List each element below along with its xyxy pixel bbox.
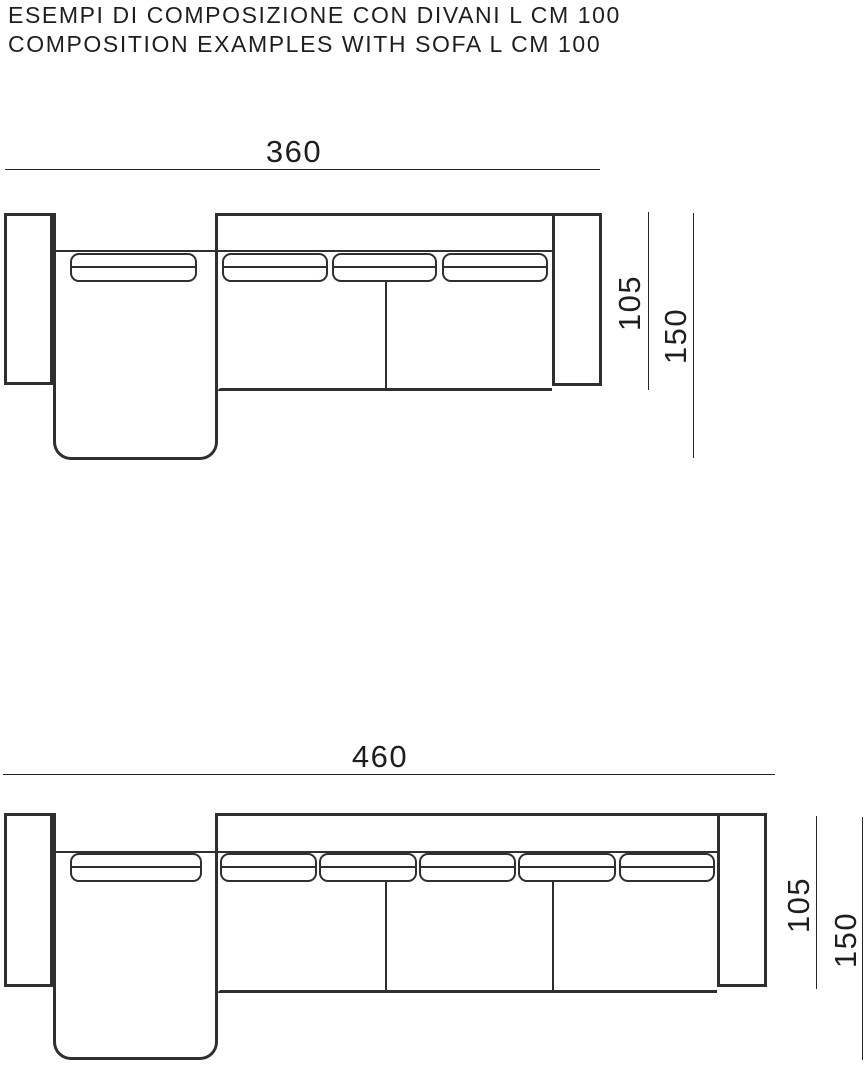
back-cushion <box>419 853 516 882</box>
chaise-depth-label-150: 150 <box>830 890 862 990</box>
backrest-seam-line <box>53 250 552 252</box>
seat-depth-dimension-line <box>816 816 817 989</box>
width-dimension-label-460: 460 <box>320 739 440 775</box>
seat-depth-dimension-line <box>648 212 649 390</box>
seat-cushion-divider <box>385 281 387 389</box>
right-armrest <box>717 813 767 987</box>
seat-front-edge <box>218 990 717 993</box>
seat-depth-label-105: 105 <box>614 253 646 353</box>
back-cushion <box>442 253 548 282</box>
left-armrest <box>4 213 53 385</box>
width-dimension-label-360: 360 <box>234 134 354 170</box>
back-cushion <box>518 853 616 882</box>
seat-front-edge <box>218 388 552 391</box>
back-cushion <box>70 253 197 282</box>
page-title-line-italian: ESEMPI DI COMPOSIZIONE CON DIVANI L CM 1… <box>8 1 621 30</box>
chaise-depth-dimension-line <box>693 213 694 458</box>
page-title: ESEMPI DI COMPOSIZIONE CON DIVANI L CM 1… <box>8 1 621 59</box>
back-cushion <box>619 853 715 882</box>
right-armrest <box>552 213 602 386</box>
back-cushion <box>332 253 437 282</box>
seat-depth-label-105: 105 <box>783 855 815 955</box>
width-dimension-line <box>5 169 600 170</box>
left-armrest <box>4 813 53 987</box>
width-dimension-line <box>3 774 775 775</box>
chaise-depth-label-150: 150 <box>660 286 692 386</box>
back-cushion <box>222 253 328 282</box>
back-cushion <box>70 853 202 882</box>
seat-cushion-divider <box>385 881 387 991</box>
catalog-page: ESEMPI DI COMPOSIZIONE CON DIVANI L CM 1… <box>0 0 865 1073</box>
back-cushion <box>319 853 417 882</box>
seat-cushion-divider <box>552 881 554 991</box>
page-title-line-english: COMPOSITION EXAMPLES WITH SOFA L CM 100 <box>8 30 621 59</box>
back-cushion <box>220 853 317 882</box>
